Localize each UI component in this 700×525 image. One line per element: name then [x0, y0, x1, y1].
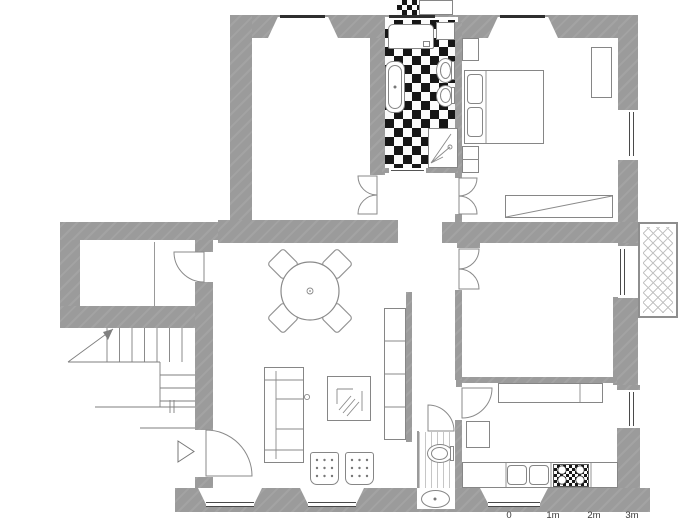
wc-toilet-cistern: [450, 446, 454, 461]
chair-se: [321, 302, 352, 333]
bedroom1-window-lintel: [500, 15, 545, 18]
living-west-wall-b: [195, 282, 213, 430]
kitchen-bottom-window-glass: [488, 502, 540, 507]
bed-pillow-2: [467, 107, 483, 137]
staircase: [68, 328, 195, 428]
bedroom1-door-opening: [455, 178, 462, 214]
corridor-partition-wall: [406, 292, 412, 442]
roof-shaft-block: [419, 0, 453, 15]
right-wall-kitchen-b: [617, 428, 640, 488]
wc-door-swing: [428, 405, 454, 431]
left-wall-upper: [230, 15, 252, 222]
stairwell-bottom-wall: [60, 306, 195, 328]
bedroom-divider-wall: [442, 222, 638, 243]
kitchen-door-opening: [456, 387, 462, 420]
shower: [428, 128, 458, 168]
bidet-bowl: [440, 88, 451, 103]
balcony-door-glass: [620, 249, 625, 295]
kitchen-top-counter: [498, 383, 603, 403]
hall-east-wall-b: [455, 290, 462, 380]
washing-machine-detail: [423, 41, 430, 47]
living-west-wall-a: [195, 240, 213, 252]
bathroom-window-lintel: [389, 15, 435, 18]
dining-set: [267, 248, 352, 333]
right-wall-bedroom2: [613, 297, 638, 385]
wc-toilet-bowl: [431, 447, 448, 460]
scale-label-1m: 1m: [542, 510, 564, 521]
stair-direction-arrow: [103, 329, 113, 340]
fridge: [466, 421, 490, 448]
dining-chairs: [267, 248, 352, 333]
table-center-dot: [309, 290, 311, 292]
right-wall-upper: [618, 15, 638, 112]
scale-label-0: 0: [498, 510, 520, 521]
floor-plan: 0 1m 2m 3m: [0, 0, 700, 525]
kitchen-sink-1: [507, 465, 527, 485]
bedroom1-wardrobe: [591, 47, 612, 98]
bedroom2-door-swing-lower: [459, 269, 479, 289]
stairwell-door-opening: [195, 252, 213, 282]
bedroom1-side-window-gap: [618, 110, 638, 160]
wc-basin: [421, 490, 450, 508]
hall-shelf-unit: [384, 308, 406, 440]
bidet-mount: [451, 87, 455, 104]
pouf-1: [310, 452, 339, 485]
bedroom2-door-opening: [455, 248, 462, 290]
bed-pillow-1: [467, 74, 483, 104]
bedroom1-nightstand: [462, 146, 479, 173]
bathroom-sliding-door: [391, 170, 424, 172]
kitchen-door-swing: [462, 388, 492, 418]
stairwell-landing-divider: [154, 242, 155, 306]
round-dining-table: [281, 262, 339, 320]
bathroom-shelf: [436, 22, 455, 40]
chair-sw: [267, 302, 298, 333]
study-south-wall: [218, 220, 398, 243]
bedroom2-door-swing-upper: [459, 249, 479, 269]
bedroom1-sideboard: [505, 195, 613, 218]
chair-nw: [267, 248, 298, 279]
study-window-lintel: [280, 15, 325, 18]
bedroom1-window-reveal: [488, 17, 558, 38]
study-bathroom-wall: [370, 38, 385, 175]
chimney-flue-block: [397, 0, 419, 15]
bathtub-inner: [388, 65, 402, 109]
bedroom1-side-window-glass: [629, 112, 634, 156]
table-center-mark: [307, 288, 313, 294]
pouf-2: [345, 452, 374, 485]
living-west-wall-c: [195, 477, 213, 488]
study-window-reveal: [268, 17, 338, 38]
toilet-bowl: [440, 62, 451, 79]
bedroom1-shelf: [462, 38, 479, 61]
scale-label-2m: 2m: [583, 510, 605, 521]
toilet-cistern: [451, 61, 455, 80]
coffee-table: [327, 376, 371, 421]
scale-label-3m: 3m: [621, 510, 643, 521]
living-window1-glass: [206, 502, 254, 507]
chair-ne: [321, 248, 352, 279]
balcony: [638, 222, 678, 318]
floor-outlet-mark: [304, 394, 309, 399]
entry-door-opening: [195, 430, 213, 477]
living-window2-glass: [308, 502, 356, 507]
stove: [553, 464, 589, 487]
hall-east-wall-a: [455, 214, 462, 222]
kitchen-sink-2: [529, 465, 549, 485]
kitchen-window-glass: [629, 392, 634, 426]
wc-kitchen-wall: [455, 420, 462, 488]
study-door-opening: [370, 176, 385, 214]
kitchen-west-wall: [456, 380, 462, 387]
entrance-arrow: [178, 441, 194, 462]
sofa: [264, 367, 304, 463]
